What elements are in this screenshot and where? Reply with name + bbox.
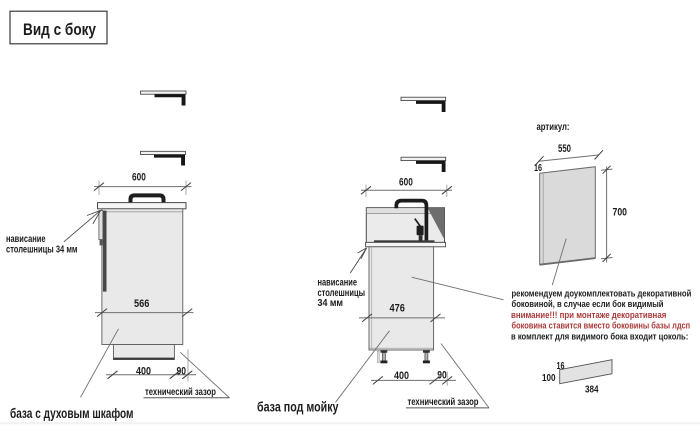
svg-text:технический зазор: технический зазор [145, 387, 216, 398]
svg-text:боковиной, в случае если бок в: боковиной, в случае если бок видимый [512, 299, 664, 310]
svg-text:90: 90 [177, 365, 187, 377]
svg-text:боковина ставится вместо боков: боковина ставится вместо боковины базы л… [512, 321, 691, 332]
svg-text:700: 700 [613, 207, 628, 219]
svg-text:база под мойку: база под мойку [257, 399, 339, 415]
svg-text:рекомендуем доукомплектовать д: рекомендуем доукомплектовать декоративно… [512, 288, 692, 299]
svg-text:384: 384 [585, 385, 599, 396]
svg-text:столешницы 34 мм: столешницы 34 мм [6, 244, 78, 255]
svg-text:400: 400 [136, 365, 151, 377]
svg-text:16: 16 [534, 163, 542, 174]
svg-text:в комплект для видимого бока в: в комплект для видимого бока входит цоко… [511, 331, 688, 342]
svg-text:550: 550 [558, 143, 571, 155]
svg-text:нависание: нависание [6, 234, 46, 245]
svg-text:100: 100 [542, 373, 556, 384]
svg-text:400: 400 [394, 370, 409, 382]
svg-text:внимание!!! при монтаже декора: внимание!!! при монтаже декоративная [511, 310, 666, 321]
svg-text:16: 16 [557, 361, 565, 372]
svg-text:Вид с боку: Вид с боку [23, 20, 96, 39]
svg-text:566: 566 [134, 298, 149, 310]
svg-text:технический зазор: технический зазор [408, 397, 479, 408]
svg-text:600: 600 [132, 172, 146, 184]
svg-text:476: 476 [390, 303, 405, 315]
svg-text:артикул:: артикул: [537, 122, 570, 133]
svg-text:600: 600 [399, 177, 413, 189]
svg-text:90: 90 [437, 369, 447, 381]
svg-text:база с духовым шкафом: база с духовым шкафом [10, 406, 134, 421]
svg-text:34 мм: 34 мм [318, 298, 344, 309]
